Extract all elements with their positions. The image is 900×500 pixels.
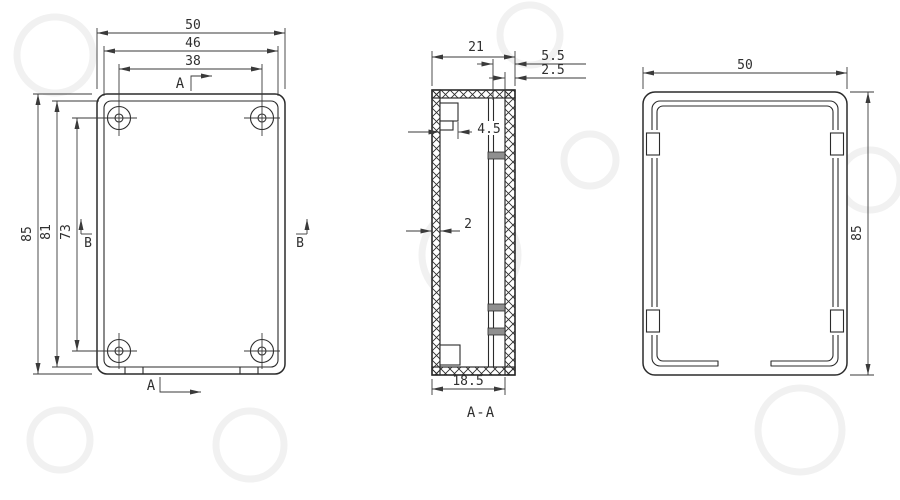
- side-outer-outline: [643, 92, 847, 375]
- section-wall-top-hatch: [432, 90, 515, 98]
- dim-label-front-81: 81: [39, 224, 54, 240]
- section-wall-right-hatch: [505, 90, 515, 375]
- snap-tab-1: [488, 152, 505, 159]
- section-wall-left-hatch: [432, 90, 440, 375]
- side-dim-width: 50: [643, 58, 847, 89]
- clip-right-bottom: [831, 310, 844, 332]
- dim-label-21: 21: [468, 40, 484, 55]
- section-cut-a-bottom: A: [147, 377, 201, 394]
- side-dim-height: 85: [850, 92, 874, 375]
- dim-label-2: 2: [464, 217, 472, 232]
- screw-boss-top-step: [440, 121, 453, 130]
- dim-label-front-50: 50: [185, 18, 201, 33]
- dim-label-front-46: 46: [185, 36, 201, 51]
- section-cut-b-left: B: [81, 219, 92, 251]
- snap-tab-3: [488, 328, 505, 335]
- dim-label-side-85: 85: [850, 225, 865, 241]
- front-outer-outline: [97, 94, 285, 374]
- screw-boss-top: [440, 103, 458, 121]
- clip-right-top: [831, 133, 844, 155]
- cut-label-a-bottom: A: [147, 378, 156, 394]
- dim-label-18-5: 18.5: [452, 374, 483, 389]
- front-dim-hole-span-v: 73: [59, 118, 77, 351]
- dim-label-side-50: 50: [737, 58, 753, 73]
- cut-label-a-top: A: [176, 76, 185, 92]
- snap-tab-2: [488, 304, 505, 311]
- front-dim-hole-span-h: 38: [119, 54, 262, 69]
- clip-left-bottom: [647, 310, 660, 332]
- dim-label-front-85: 85: [20, 226, 35, 242]
- section-cut-a-top: A: [176, 76, 212, 92]
- cut-label-b-left: B: [84, 236, 92, 251]
- screw-boss-bottom: [440, 345, 460, 365]
- section-view-aa: 21 5.5 2.5 4.5 2: [406, 40, 586, 421]
- dim-label-front-38: 38: [185, 54, 201, 69]
- drawing-sheet: 50 46 38 85 81 73: [0, 0, 900, 500]
- side-view: 50 85: [643, 58, 874, 375]
- dim-label-4-5: 4.5: [477, 122, 500, 137]
- dim-label-2-5: 2.5: [541, 63, 564, 78]
- side-bottom-gap: [718, 359, 771, 369]
- dim-label-front-73: 73: [59, 224, 74, 240]
- section-cut-b-right: B: [296, 219, 307, 251]
- section-title: A-A: [467, 405, 495, 421]
- technical-drawing-canvas: 50 46 38 85 81 73: [0, 0, 900, 500]
- clip-left-top: [647, 133, 660, 155]
- dim-label-5-5: 5.5: [541, 49, 564, 64]
- cut-label-b-right: B: [296, 236, 304, 251]
- section-dim-inner-depth: 18.5: [432, 374, 505, 395]
- front-view: 50 46 38 85 81 73: [20, 18, 307, 394]
